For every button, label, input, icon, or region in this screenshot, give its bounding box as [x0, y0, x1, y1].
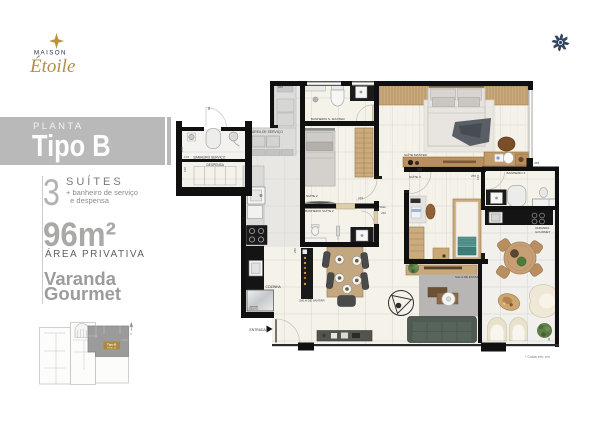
svg-text:358: 358	[534, 161, 539, 165]
svg-text:30: 30	[547, 337, 551, 341]
svg-text:250: 250	[293, 248, 297, 253]
svg-text:170: 170	[184, 155, 189, 159]
svg-text:SUÍTE MASTER: SUÍTE MASTER	[404, 153, 428, 157]
svg-text:ENTRADA: ENTRADA	[250, 328, 267, 332]
svg-text:BANHEIRO 3: BANHEIRO 3	[507, 171, 526, 175]
svg-text:SUÍTE 3: SUÍTE 3	[409, 175, 421, 179]
svg-text:FINAL 02: FINAL 02	[107, 347, 117, 350]
svg-text:BANHEIRO SERVIÇO: BANHEIRO SERVIÇO	[194, 156, 226, 160]
svg-text:240: 240	[381, 211, 386, 215]
svg-text:BANHEIRO S. MASTER: BANHEIRO S. MASTER	[311, 117, 345, 121]
svg-text:SUÍTE 2: SUÍTE 2	[306, 194, 318, 198]
svg-text:GELAD.: GELAD.	[249, 307, 259, 311]
svg-text:240: 240	[180, 147, 184, 152]
svg-text:N: N	[130, 332, 132, 336]
svg-text:* Cotas em: cm: * Cotas em: cm	[525, 355, 550, 359]
svg-text:BANHEIRO SUÍTE 2: BANHEIRO SUÍTE 2	[305, 209, 334, 213]
svg-text:249: 249	[358, 196, 363, 200]
svg-text:100: 100	[183, 167, 187, 172]
svg-text:SALA DE JANTAR: SALA DE JANTAR	[299, 299, 325, 303]
svg-text:Tipo B: Tipo B	[107, 342, 117, 346]
svg-text:360: 360	[278, 85, 283, 89]
svg-text:ÁREA DE SERVIÇO: ÁREA DE SERVIÇO	[252, 130, 283, 134]
svg-text:253: 253	[417, 168, 422, 172]
svg-text:150: 150	[476, 175, 480, 180]
svg-text:DESPENSA: DESPENSA	[207, 163, 225, 167]
svg-text:GOURMET: GOURMET	[535, 230, 551, 234]
svg-text:COZINHA: COZINHA	[266, 285, 282, 289]
svg-text:80: 80	[207, 106, 211, 110]
svg-text:SALA DE ESTAR: SALA DE ESTAR	[455, 275, 480, 279]
svg-text:HALL: HALL	[379, 205, 387, 209]
